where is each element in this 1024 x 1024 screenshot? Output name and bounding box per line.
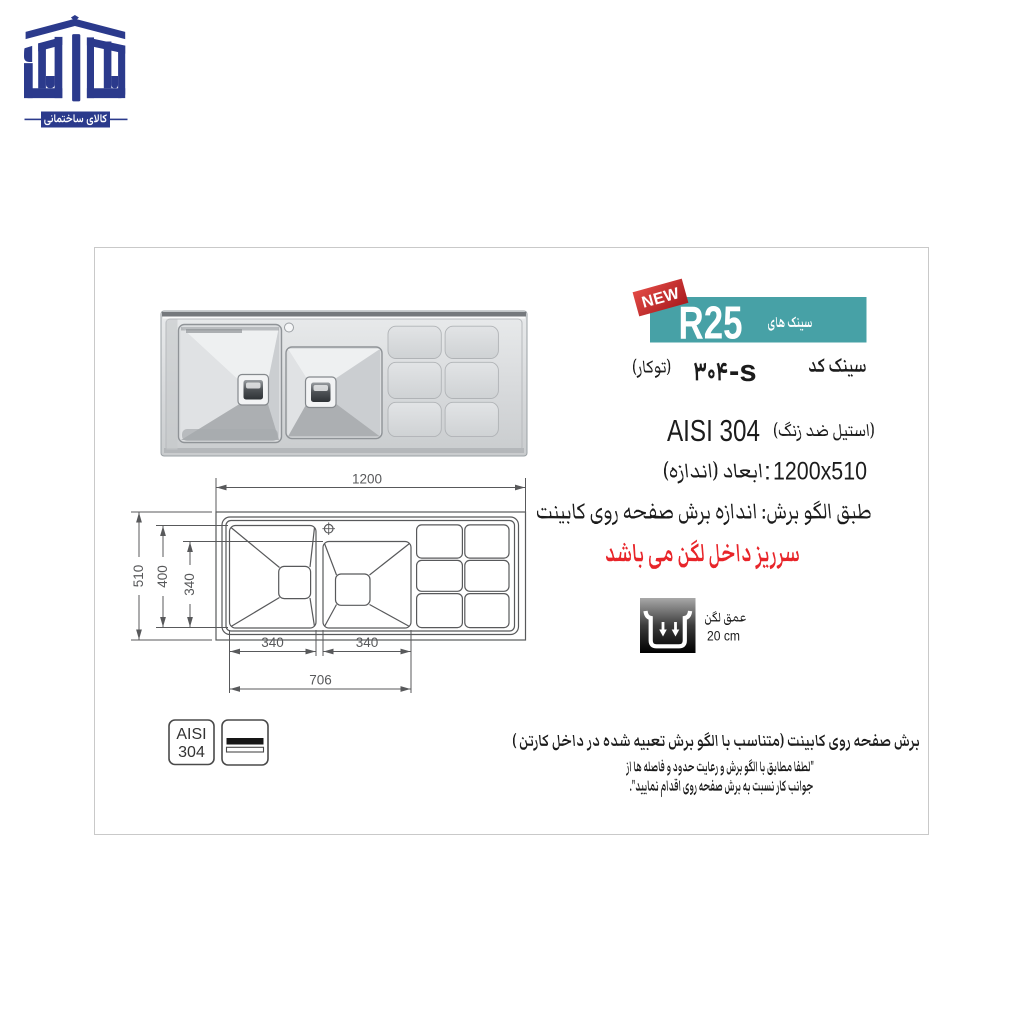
svg-text:510: 510 — [131, 565, 146, 588]
svg-text:340: 340 — [182, 573, 197, 596]
svg-text:AISI 304: AISI 304 — [667, 413, 760, 448]
svg-text:1200: 1200 — [352, 472, 382, 487]
svg-text:706: 706 — [309, 673, 332, 688]
svg-text:-s: -s — [729, 353, 757, 388]
svg-text:AISI: AISI — [176, 726, 206, 743]
svg-text:R25: R25 — [679, 297, 743, 349]
svg-text:400: 400 — [155, 565, 170, 588]
svg-text:340: 340 — [356, 635, 379, 650]
svg-text:340: 340 — [261, 635, 284, 650]
svg-text:1200x510: 1200x510 — [773, 458, 867, 486]
svg-text::: : — [764, 458, 771, 486]
svg-text:304: 304 — [178, 744, 205, 761]
svg-text:20 cm: 20 cm — [707, 629, 740, 644]
